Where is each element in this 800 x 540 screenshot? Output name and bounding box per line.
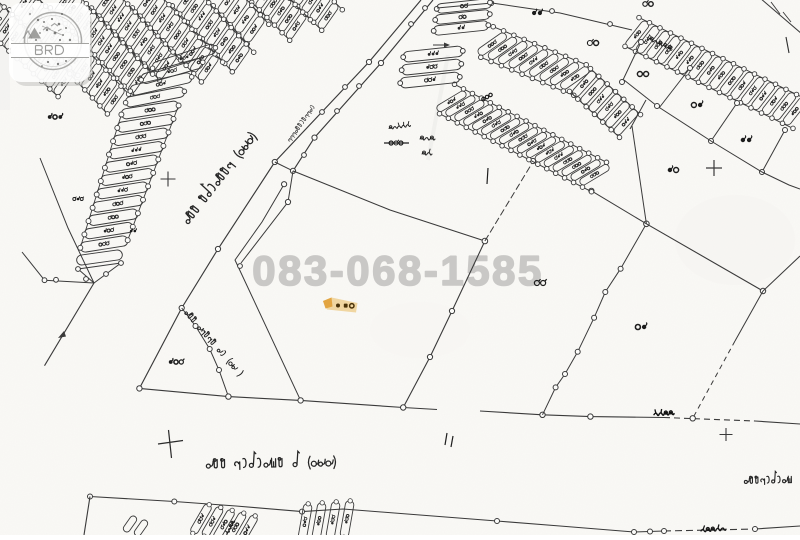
svg-text:083-068-1585: 083-068-1585 <box>252 247 544 294</box>
